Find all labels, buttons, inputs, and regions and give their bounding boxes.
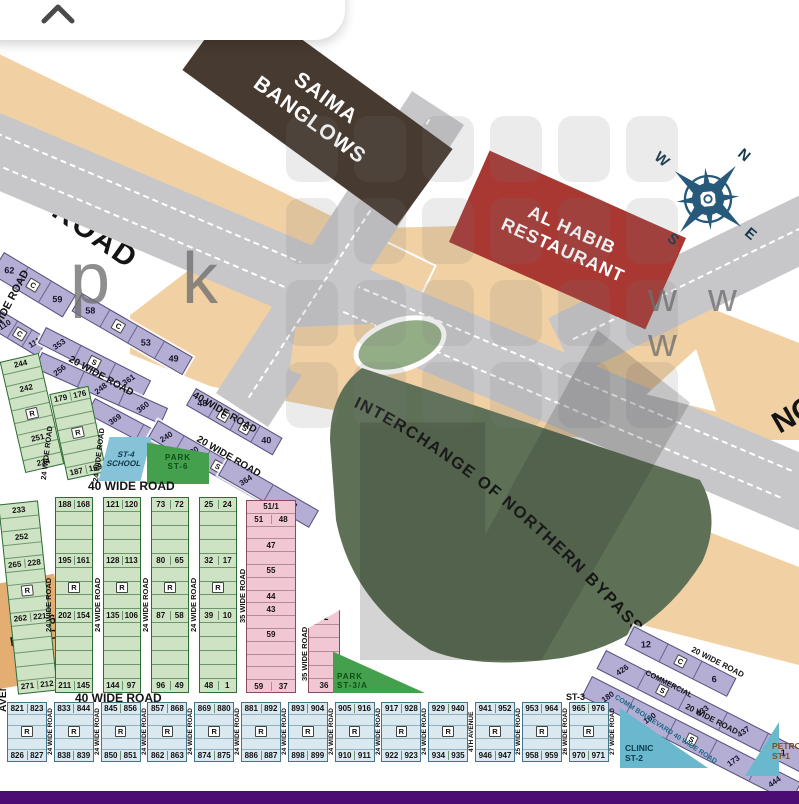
plot-number: 875	[214, 751, 234, 760]
plot-number: 51/1	[247, 502, 295, 511]
plot-row: 271212	[18, 676, 57, 693]
plot-row	[309, 624, 339, 638]
plot-number: 964	[541, 704, 561, 713]
plot-row	[104, 664, 140, 678]
reserved-chip: R	[21, 726, 32, 737]
plot-number: 976	[588, 704, 608, 713]
plot-number: 72	[170, 500, 189, 509]
plot-block: 905916R910911	[335, 702, 375, 762]
plot-row: 5937	[247, 679, 295, 692]
plot-number: 161	[74, 556, 93, 565]
plot-column: 51/1514847554443595937	[246, 500, 296, 693]
plot-number: 73	[152, 500, 170, 509]
plot-number: 65	[170, 556, 189, 565]
plot-row	[56, 525, 92, 539]
plot-row: 121120	[104, 498, 140, 511]
park3a-line2: ST-3/A	[337, 681, 368, 690]
plot-number: 898	[289, 751, 308, 760]
plot-number: 958	[523, 751, 542, 760]
plot-number: 833	[55, 704, 74, 713]
plot-block: 869880R874875	[194, 702, 234, 762]
plot-number: 55	[247, 566, 295, 575]
plot-number: 32	[200, 556, 218, 565]
top-sheet-panel[interactable]	[0, 0, 345, 40]
plot-row	[200, 511, 236, 525]
plot-row	[200, 650, 236, 664]
plot-number: 47	[247, 541, 295, 550]
plot-number: 188	[56, 500, 74, 509]
plot-number: 262	[11, 613, 30, 624]
plot-number: 856	[120, 704, 140, 713]
plot-number: 823	[27, 704, 47, 713]
petrol-line2: ST-1	[772, 752, 790, 762]
plot-row: R	[152, 581, 188, 595]
plot-number: 851	[120, 751, 140, 760]
plot-block: 893904R898899	[288, 702, 328, 762]
plot-row: 5148	[247, 513, 295, 526]
plot-number: 58	[170, 611, 189, 620]
plot-number: C	[111, 319, 126, 334]
plot-number: 59	[247, 682, 271, 691]
plot-number: 96	[152, 681, 170, 690]
plot-number: 265	[5, 559, 24, 570]
reserved-chip: R	[68, 582, 79, 593]
plot-number: 80	[152, 556, 170, 565]
plot-number: 946	[476, 751, 495, 760]
plot-number: 228	[23, 557, 43, 568]
plot-row: 211145	[56, 678, 92, 692]
scheme-map[interactable]: WIDE ROAD INTERCHANGE OF NORTHERN BYPASS…	[0, 0, 799, 804]
plot-row	[104, 650, 140, 664]
petrol-block: PETROL ST-1	[772, 735, 799, 769]
road-label-24-wide: 24 WIDE ROAD	[189, 560, 198, 650]
plot-number: 886	[242, 751, 261, 760]
plot-number: 899	[307, 751, 327, 760]
plot-row	[56, 622, 92, 636]
plot-number: 145	[74, 681, 93, 690]
plot-row	[247, 577, 295, 590]
plot-block: 857868R862863	[147, 702, 187, 762]
plot-block: 833844R838839	[54, 702, 94, 762]
plot-row	[56, 594, 92, 608]
plot-row	[152, 636, 188, 650]
plot-number: 59	[52, 294, 62, 304]
bottom-bar	[0, 791, 799, 804]
plot-number: 868	[167, 704, 187, 713]
plot-number: 910	[336, 751, 355, 760]
plot-number: 922	[382, 751, 401, 760]
plot-number: 135	[104, 611, 122, 620]
school-line1: ST-4	[117, 450, 136, 459]
plot-row	[152, 539, 188, 553]
plot-number: 240	[158, 429, 174, 444]
plot-number: 212	[36, 679, 56, 690]
plot-number: 917	[382, 704, 401, 713]
plot-row	[104, 511, 140, 525]
plot-row	[247, 641, 295, 654]
plot-block: 965976R970971	[569, 702, 609, 762]
plot-row: 55	[247, 564, 295, 577]
plot-row: 7372	[152, 498, 188, 511]
plot-block: 953964R958959	[522, 702, 562, 762]
reserved-chip: R	[68, 726, 79, 737]
plot-number: 360	[135, 399, 151, 414]
reserved-chip: R	[536, 726, 547, 737]
plot-number: 154	[74, 611, 93, 620]
road-label-24-wide: 24 WIDE ROAD	[93, 560, 102, 650]
plot-number: 892	[261, 704, 281, 713]
plot-number: 1	[218, 681, 237, 690]
plot-column: 25243217R3910481	[199, 497, 237, 693]
plot-row	[200, 622, 236, 636]
plot-number: 845	[102, 704, 121, 713]
reserved-chip: R	[583, 726, 594, 737]
plot-row	[56, 664, 92, 678]
plot-number: 128	[104, 556, 122, 565]
plot-row	[200, 636, 236, 650]
plot-row	[309, 637, 339, 651]
plot-number: 44	[247, 592, 295, 601]
plot-row: 188168	[56, 498, 92, 511]
plot-number: 905	[336, 704, 355, 713]
plot-row	[104, 539, 140, 553]
plot-number: 965	[570, 704, 589, 713]
plot-number: 49	[168, 353, 178, 363]
plot-number: 444	[767, 775, 783, 790]
plot-row	[247, 526, 295, 539]
plot-row: 14497	[104, 678, 140, 692]
plot-row	[200, 539, 236, 553]
plot-row	[152, 567, 188, 581]
plot-row	[56, 511, 92, 525]
plot-row	[56, 650, 92, 664]
plot-number: 821	[8, 704, 27, 713]
road-label-35-wide: 35 WIDE ROAD	[300, 615, 309, 693]
reserved-chip: R	[302, 726, 313, 737]
plot-number: 173	[725, 753, 741, 768]
road-label-header-top: 40 WIDE ROAD	[88, 479, 175, 493]
plot-number: 838	[55, 751, 74, 760]
plot-row	[152, 525, 188, 539]
plot-number: 827	[27, 751, 47, 760]
plot-number: 211	[56, 681, 74, 690]
plot-number: 862	[148, 751, 167, 760]
plot-number: 929	[429, 704, 448, 713]
plot-row: R	[56, 581, 92, 595]
reserved-chip: R	[255, 726, 266, 737]
road-label-24-wide: 24 WIDE ROAD	[44, 560, 53, 650]
plot-number: 904	[307, 704, 327, 713]
plot-number: 59	[247, 630, 295, 639]
plot-row: 43	[247, 602, 295, 615]
plot-number: 893	[289, 704, 308, 713]
plot-number: 144	[104, 681, 122, 690]
plot-row	[104, 622, 140, 636]
plot-row: R	[200, 581, 236, 595]
plot-row	[56, 636, 92, 650]
plot-number: 426	[614, 662, 630, 677]
plot-row: 195161	[56, 553, 92, 567]
plot-number: 12	[641, 639, 651, 649]
plot-number: 10	[218, 611, 237, 620]
plot-row: 8065	[152, 553, 188, 567]
plot-number: 62	[4, 265, 14, 275]
plot-number: 256	[52, 362, 68, 377]
plot-block: 929940R934935	[428, 702, 468, 762]
plot-number: 911	[354, 751, 374, 760]
plot-number: 187	[66, 465, 86, 478]
reserved-chip: R	[162, 726, 173, 737]
plot-row: 8758	[152, 608, 188, 622]
plot-number: 121	[104, 500, 122, 509]
plot-row	[152, 511, 188, 525]
plot-row	[247, 666, 295, 679]
plot-row: 202154	[56, 608, 92, 622]
plot-number: 887	[261, 751, 281, 760]
school-line2: SCHOOL	[106, 459, 143, 468]
plot-number: 369	[107, 412, 123, 427]
plot-number: 934	[429, 751, 448, 760]
plot-number: 863	[167, 751, 187, 760]
plot-number: 874	[195, 751, 214, 760]
plot-number: 25	[200, 500, 218, 509]
plot-number: 881	[242, 704, 261, 713]
plot-number: C	[12, 326, 27, 341]
plot-number: 53	[141, 337, 151, 347]
plot-number: 24	[218, 500, 237, 509]
plot-number: 48	[271, 515, 296, 524]
plot-number: C	[673, 654, 688, 669]
reserved-chip: R	[115, 726, 126, 737]
plot-number: 844	[73, 704, 93, 713]
plot-number: 970	[570, 751, 589, 760]
plot-number: 953	[523, 704, 542, 713]
plot-number: 195	[56, 556, 74, 565]
plot-row	[152, 594, 188, 608]
plot-number: 113	[122, 556, 141, 565]
plot-row: 481	[200, 678, 236, 692]
plot-number: 935	[448, 751, 468, 760]
reserved-chip: R	[442, 726, 453, 737]
plot-block: 845856R850851	[101, 702, 141, 762]
plot-number: 58	[86, 305, 96, 315]
plot-number: 947	[495, 751, 515, 760]
plot-number: 941	[476, 704, 495, 713]
plot-row: 47	[247, 538, 295, 551]
plot-row: 128113	[104, 553, 140, 567]
plot-row: 9649	[152, 678, 188, 692]
plot-row	[200, 664, 236, 678]
plot-column: 121120128113R13510614497	[103, 497, 141, 693]
road-label-vertical: 27 WIDE ROAD	[609, 701, 616, 763]
plot-number: 6	[712, 674, 717, 684]
plot-row	[56, 567, 92, 581]
plot-row	[152, 650, 188, 664]
plot-number: 17	[218, 556, 237, 565]
plot-number: 880	[214, 704, 234, 713]
plot-row	[200, 567, 236, 581]
reserved-chip: R	[349, 726, 360, 737]
plot-row	[56, 539, 92, 553]
plot-number: 940	[448, 704, 468, 713]
plot-number: 49	[170, 681, 189, 690]
bottom-plot-row: 821823R82682724 WIDE ROAD833844R83883924…	[0, 698, 680, 768]
plot-row: 135106	[104, 608, 140, 622]
plot-row	[247, 615, 295, 628]
plot-number: 39	[200, 611, 218, 620]
plot-number: 353	[52, 337, 68, 352]
plot-number: 971	[588, 751, 608, 760]
plot-number: 202	[56, 611, 74, 620]
plot-row	[247, 551, 295, 564]
reserved-chip: R	[489, 726, 500, 737]
plot-number: 37	[271, 682, 296, 691]
plot-block: 941952R946947	[475, 702, 515, 762]
plot-number: 916	[354, 704, 374, 713]
plot-row	[104, 525, 140, 539]
park3a-line1: PARK	[337, 672, 363, 681]
plot-row: 59	[247, 628, 295, 641]
plot-number: 106	[122, 611, 141, 620]
plot-row	[104, 567, 140, 581]
reserved-chip: R	[21, 585, 34, 597]
plot-number: 952	[495, 704, 515, 713]
plot-block: 821823R826827	[7, 702, 47, 762]
plot-number: 120	[122, 500, 141, 509]
plot-number: 48	[200, 681, 218, 690]
plot-number: 959	[541, 751, 561, 760]
plot-row	[104, 594, 140, 608]
plot-row	[152, 622, 188, 636]
plot-number: 97	[122, 681, 141, 690]
plot-number: 43	[247, 605, 295, 614]
plot-number: 928	[401, 704, 421, 713]
plot-number: 87	[152, 611, 170, 620]
plot-number: 826	[8, 751, 27, 760]
plot-row	[104, 636, 140, 650]
plot-row: 2524	[200, 498, 236, 511]
plot-number: 923	[401, 751, 421, 760]
plot-row	[152, 664, 188, 678]
plot-block: 917928R922923	[381, 702, 421, 762]
plot-row: 51/1	[247, 501, 295, 513]
plot-row	[200, 594, 236, 608]
plot-row: 3217	[200, 553, 236, 567]
plot-row: 44	[247, 590, 295, 603]
reserved-chip: R	[164, 582, 175, 593]
chevron-up-icon[interactable]	[40, 2, 76, 26]
plot-number: 40	[261, 435, 271, 445]
park6-line1: PARK	[165, 453, 191, 462]
plot-row	[247, 654, 295, 667]
reserved-chip: R	[212, 582, 223, 593]
reserved-chip: R	[396, 726, 407, 737]
plot-column: 188168195161R202154211145	[55, 497, 93, 693]
plot-number: 51	[247, 515, 271, 524]
plot-row	[200, 525, 236, 539]
plot-number: 857	[148, 704, 167, 713]
plot-column: 73728065R87589649	[151, 497, 189, 693]
plot-number: 850	[102, 751, 121, 760]
reserved-chip: R	[116, 582, 127, 593]
road-label-24-wide: 24 WIDE ROAD	[141, 560, 150, 650]
park6-line2: ST-6	[168, 462, 189, 471]
plot-block: 881892R886887	[241, 702, 281, 762]
reserved-chip: R	[208, 726, 219, 737]
plot-number: 839	[73, 751, 93, 760]
plot-row: R	[104, 581, 140, 595]
plot-row: 3910	[200, 608, 236, 622]
plot-number: 271	[18, 681, 37, 692]
plot-number: 869	[195, 704, 214, 713]
plot-number: 168	[74, 500, 93, 509]
